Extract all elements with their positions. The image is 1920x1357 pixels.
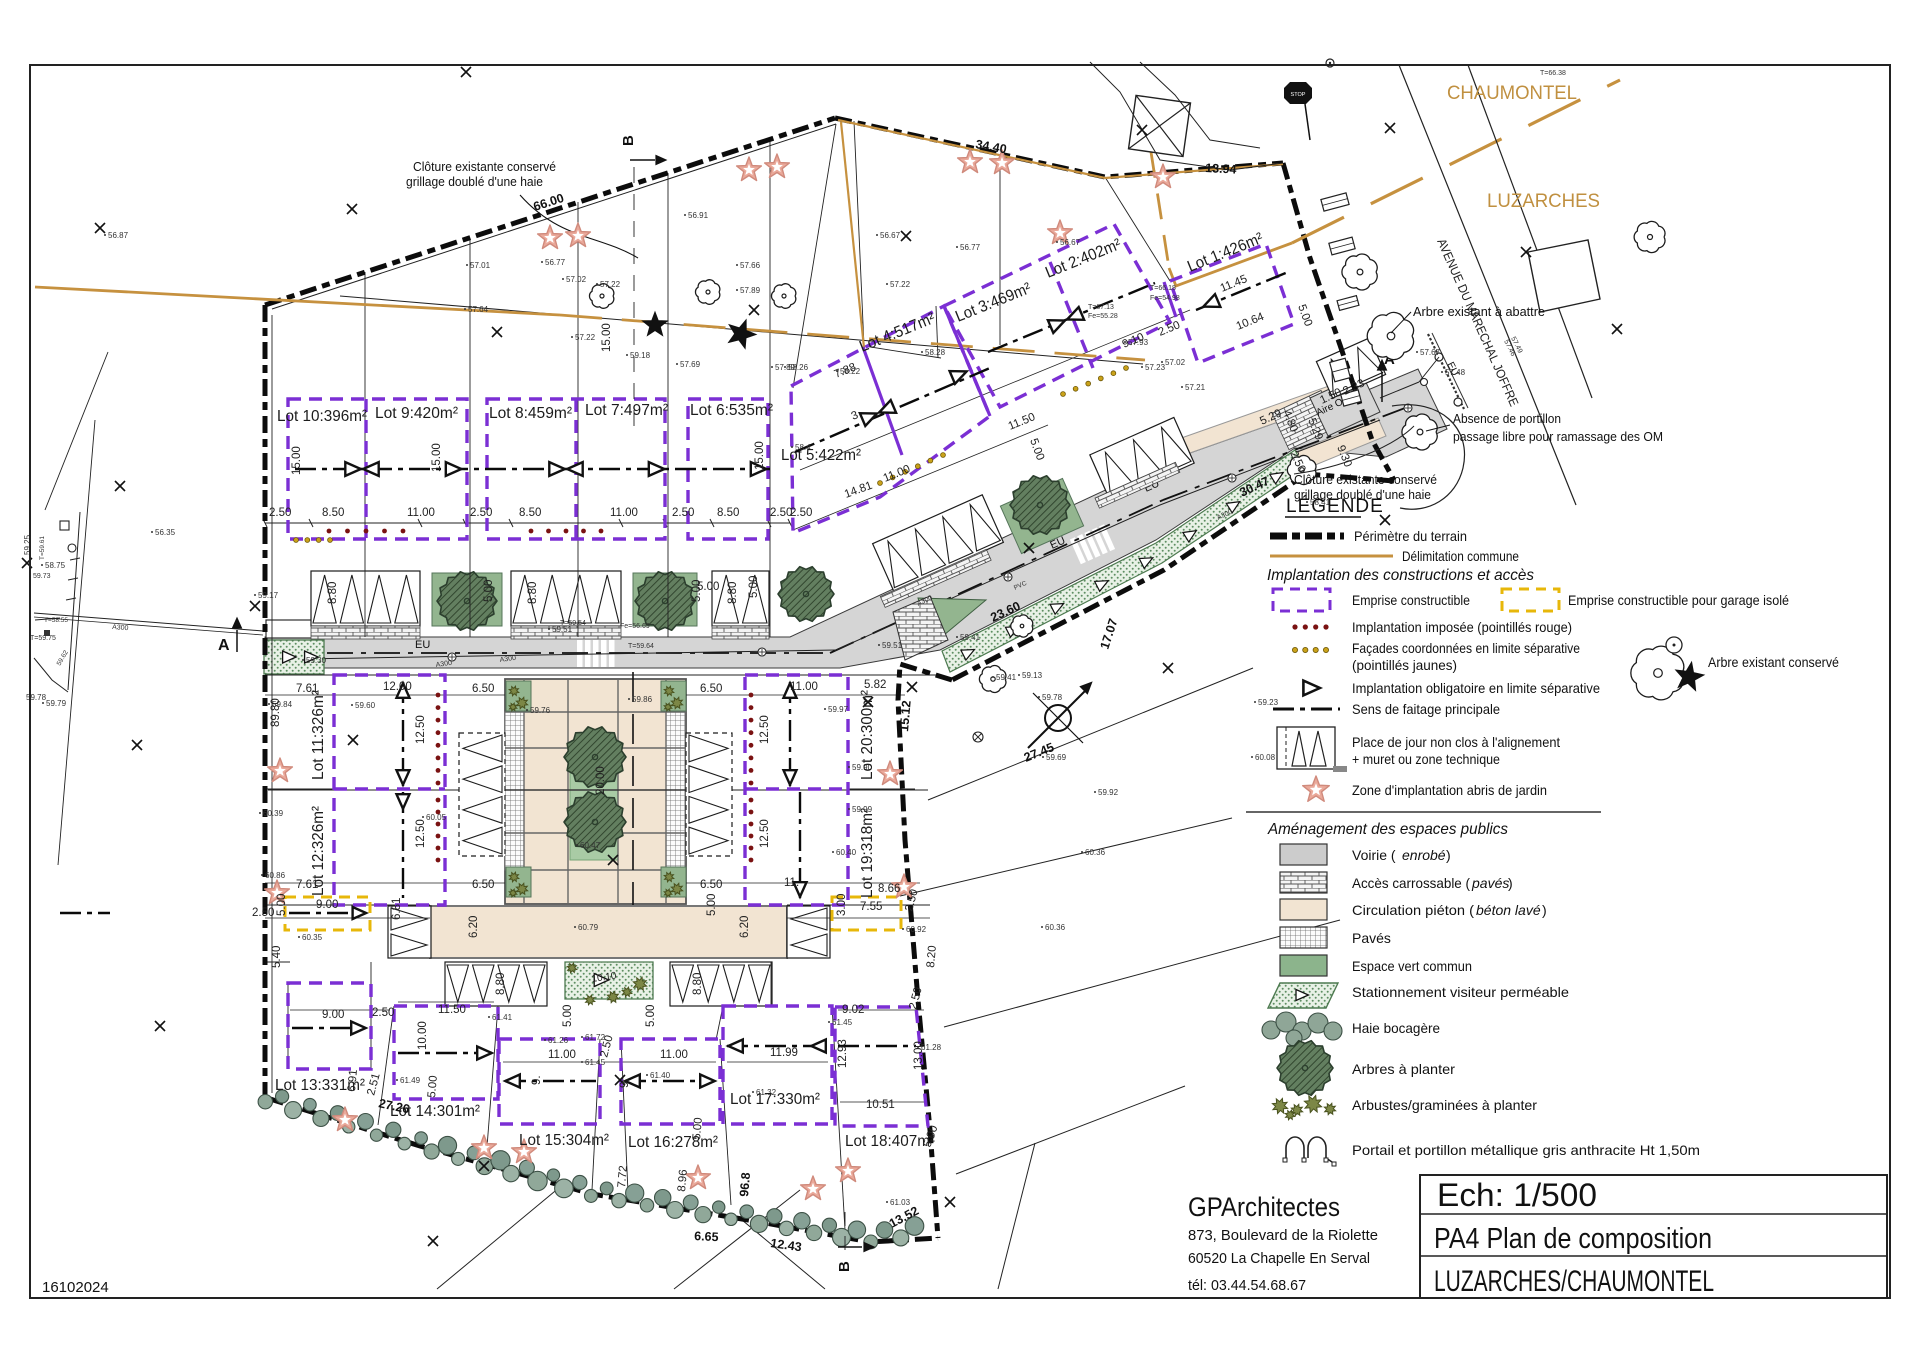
svg-text:60.79: 60.79 bbox=[578, 923, 599, 932]
svg-text:5.40: 5.40 bbox=[271, 946, 283, 968]
svg-text:5.00: 5.00 bbox=[426, 1075, 440, 1098]
svg-text:6.50: 6.50 bbox=[472, 683, 494, 695]
svg-text:59.86: 59.86 bbox=[632, 695, 653, 704]
svg-text:56.35: 56.35 bbox=[155, 528, 176, 537]
svg-text:61.49: 61.49 bbox=[400, 1076, 421, 1085]
svg-text:T=67.13: T=67.13 bbox=[1088, 304, 1114, 311]
svg-text:5.00: 5.00 bbox=[691, 1117, 705, 1140]
svg-text:Sens de faitage principale: Sens de faitage principale bbox=[1352, 701, 1500, 717]
svg-text:12.50: 12.50 bbox=[759, 715, 771, 744]
svg-text:Fe=56.69: Fe=56.69 bbox=[620, 623, 650, 630]
svg-text:59.73: 59.73 bbox=[33, 573, 51, 580]
svg-text:EU: EU bbox=[415, 639, 430, 651]
svg-text:5.00: 5.00 bbox=[562, 1005, 574, 1027]
svg-text:Place de jour non clos à l'ali: Place de jour non clos à l'alignement bbox=[1352, 734, 1560, 750]
svg-text:11.00: 11.00 bbox=[610, 507, 638, 519]
svg-text:Façades coordonnées en limite: Façades coordonnées en limite séparative bbox=[1352, 640, 1580, 656]
svg-text:57.23: 57.23 bbox=[1145, 363, 1166, 372]
svg-text:T=66.18: T=66.18 bbox=[1150, 285, 1176, 292]
svg-text:56.87: 56.87 bbox=[108, 231, 129, 240]
svg-text:Ech: 1/500: Ech: 1/500 bbox=[1437, 1177, 1597, 1213]
svg-text:Accès carrossable (: Accès carrossable ( bbox=[1352, 875, 1470, 891]
svg-text:60.86: 60.86 bbox=[265, 871, 286, 880]
svg-text:5.00: 5.00 bbox=[706, 894, 718, 916]
svg-text:8.50: 8.50 bbox=[519, 507, 541, 519]
svg-text:57.22: 57.22 bbox=[600, 280, 621, 289]
svg-text:Arbre existant à abattre: Arbre existant à abattre bbox=[1413, 304, 1545, 319]
svg-text:Lot 11:326m²: Lot 11:326m² bbox=[310, 689, 327, 780]
svg-text:89.80: 89.80 bbox=[270, 698, 282, 727]
svg-text:Arbustes/graminées à planter: Arbustes/graminées à planter bbox=[1352, 1097, 1537, 1113]
svg-text:15.00: 15.00 bbox=[431, 443, 443, 472]
svg-text:LUZARCHES: LUZARCHES bbox=[1487, 191, 1600, 212]
svg-text:CHAUMONTEL: CHAUMONTEL bbox=[1447, 83, 1577, 104]
svg-text:Lot 5:422m²: Lot 5:422m² bbox=[781, 447, 862, 464]
svg-text:2.50: 2.50 bbox=[269, 507, 291, 519]
svg-text:3.00: 3.00 bbox=[836, 894, 848, 916]
svg-text:béton lavé: béton lavé bbox=[1476, 902, 1541, 918]
svg-text:60.08: 60.08 bbox=[1255, 753, 1276, 762]
svg-text:57.67: 57.67 bbox=[1420, 348, 1441, 357]
svg-text:57.01: 57.01 bbox=[470, 261, 491, 270]
svg-text:8.66: 8.66 bbox=[878, 883, 900, 895]
svg-text:Lot 15:304m²: Lot 15:304m² bbox=[519, 1132, 610, 1149]
svg-text:Lot 7:497m²: Lot 7:497m² bbox=[585, 402, 669, 419]
svg-text:57.02: 57.02 bbox=[566, 275, 587, 284]
svg-text:57.64: 57.64 bbox=[468, 305, 489, 314]
svg-text:(pointillés jaunes): (pointillés jaunes) bbox=[1352, 657, 1457, 673]
svg-text:12.00: 12.00 bbox=[383, 681, 412, 693]
svg-text:57.66: 57.66 bbox=[740, 261, 761, 270]
svg-text:11.99: 11.99 bbox=[770, 1047, 798, 1059]
svg-text:7.61: 7.61 bbox=[296, 879, 318, 891]
svg-text:11.00: 11.00 bbox=[660, 1049, 688, 1061]
svg-text:6.65: 6.65 bbox=[694, 1229, 719, 1244]
svg-text:57.02: 57.02 bbox=[1165, 358, 1186, 367]
svg-text:Délimitation commune: Délimitation commune bbox=[1402, 548, 1519, 564]
svg-text:59.23: 59.23 bbox=[1258, 698, 1279, 707]
svg-text:60.39: 60.39 bbox=[263, 809, 284, 818]
svg-text:12.93: 12.93 bbox=[837, 1039, 849, 1068]
svg-text:10.00: 10.00 bbox=[417, 1021, 429, 1050]
svg-text:59.41: 59.41 bbox=[996, 673, 1017, 682]
svg-text:Clôture existante conservé: Clôture existante conservé bbox=[413, 159, 556, 174]
svg-text:Espace vert commun: Espace vert commun bbox=[1352, 958, 1472, 974]
svg-text:11.00: 11.00 bbox=[790, 681, 818, 693]
svg-text:Circulation piéton (: Circulation piéton ( bbox=[1352, 902, 1474, 918]
svg-text:58.28: 58.28 bbox=[925, 348, 946, 357]
svg-text:grillage doublé d'une haie: grillage doublé d'une haie bbox=[406, 174, 543, 189]
svg-text:+ muret ou zone technique: + muret ou zone technique bbox=[1352, 751, 1500, 767]
svg-text:A300: A300 bbox=[112, 624, 129, 632]
svg-text:8.80: 8.80 bbox=[692, 973, 704, 995]
svg-text:6.50: 6.50 bbox=[472, 879, 494, 891]
svg-text:2.50: 2.50 bbox=[790, 507, 812, 519]
svg-text:8.50: 8.50 bbox=[717, 507, 739, 519]
svg-text:56.77: 56.77 bbox=[545, 258, 566, 267]
svg-text:LUZARCHES/CHAUMONTEL: LUZARCHES/CHAUMONTEL bbox=[1434, 1265, 1714, 1298]
svg-text:8.20: 8.20 bbox=[925, 945, 939, 968]
svg-text:Lot 10:396m²: Lot 10:396m² bbox=[277, 408, 368, 425]
svg-text:5.82: 5.82 bbox=[864, 679, 886, 691]
svg-text:11.00: 11.00 bbox=[407, 507, 435, 519]
svg-text:5.00: 5.00 bbox=[748, 576, 760, 598]
svg-text:6.91: 6.91 bbox=[346, 1069, 360, 1092]
svg-text:57.48: 57.48 bbox=[1445, 368, 1466, 377]
svg-text:8.50: 8.50 bbox=[322, 507, 344, 519]
svg-text:13.94: 13.94 bbox=[1205, 161, 1237, 177]
svg-text:59.79: 59.79 bbox=[46, 699, 67, 708]
svg-text:6.50: 6.50 bbox=[700, 683, 722, 695]
svg-text:Absence de portillon: Absence de portillon bbox=[1453, 411, 1561, 426]
svg-text:Lot 8:459m²: Lot 8:459m² bbox=[489, 405, 573, 422]
svg-text:9.: 9. bbox=[619, 1078, 631, 1088]
svg-text:pavés: pavés bbox=[1471, 875, 1509, 891]
svg-text:tél: 03.44.54.68.67: tél: 03.44.54.68.67 bbox=[1188, 1277, 1306, 1294]
svg-text:57.22: 57.22 bbox=[575, 333, 596, 342]
svg-text:59.30: 59.30 bbox=[306, 656, 327, 665]
svg-text:PA4 Plan de composition: PA4 Plan de composition bbox=[1434, 1223, 1712, 1255]
svg-text:5.00: 5.00 bbox=[276, 894, 288, 916]
svg-text:5.00: 5.00 bbox=[483, 580, 495, 602]
svg-text:16102024: 16102024 bbox=[42, 1279, 109, 1296]
svg-text:Implantation obligatoire en li: Implantation obligatoire en limite sépar… bbox=[1352, 680, 1600, 696]
svg-text:GPArchitectes: GPArchitectes bbox=[1188, 1192, 1340, 1222]
svg-text:57.21: 57.21 bbox=[1185, 383, 1206, 392]
svg-text:): ) bbox=[1508, 875, 1513, 891]
svg-text:6.20: 6.20 bbox=[468, 916, 480, 938]
svg-text:Emprise constructible: Emprise constructible bbox=[1352, 592, 1470, 608]
svg-text:A: A bbox=[218, 637, 230, 654]
svg-text:59.97: 59.97 bbox=[828, 705, 849, 714]
svg-text:873, Boulevard de la Riolette: 873, Boulevard de la Riolette bbox=[1188, 1227, 1378, 1244]
svg-text:6.50: 6.50 bbox=[700, 879, 722, 891]
svg-text:2.50: 2.50 bbox=[252, 907, 274, 919]
svg-text:61.45: 61.45 bbox=[832, 1018, 853, 1027]
svg-text:Pavés: Pavés bbox=[1352, 930, 1391, 946]
svg-text:6.20: 6.20 bbox=[739, 916, 751, 938]
svg-text:10.51: 10.51 bbox=[866, 1099, 895, 1111]
svg-text:6.81: 6.81 bbox=[391, 898, 403, 920]
svg-text:60.36: 60.36 bbox=[1085, 848, 1106, 857]
svg-text:59.92: 59.92 bbox=[1098, 788, 1119, 797]
svg-text:59.60: 59.60 bbox=[355, 701, 376, 710]
svg-text:15.00: 15.00 bbox=[601, 323, 613, 352]
svg-text:60.92: 60.92 bbox=[906, 925, 927, 934]
svg-text:B: B bbox=[836, 1261, 853, 1272]
svg-text:Clôture existante conservé: Clôture existante conservé bbox=[1294, 472, 1437, 487]
svg-text:Emprise constructible pour gar: Emprise constructible pour garage isolé bbox=[1568, 592, 1789, 608]
svg-text:enrobé: enrobé bbox=[1402, 847, 1446, 863]
svg-text:Arbre existant conservé: Arbre existant conservé bbox=[1708, 654, 1839, 670]
svg-text:12.50: 12.50 bbox=[415, 819, 427, 848]
svg-text:Fe=55.28: Fe=55.28 bbox=[1088, 313, 1118, 320]
svg-text:15.12: 15.12 bbox=[897, 700, 914, 732]
svg-text:2.50: 2.50 bbox=[470, 507, 492, 519]
svg-text:57.69: 57.69 bbox=[680, 360, 701, 369]
svg-text:12.50: 12.50 bbox=[759, 819, 771, 848]
svg-text:): ) bbox=[1542, 902, 1547, 918]
svg-text:T=59.54: T=59.54 bbox=[560, 620, 586, 627]
svg-text:): ) bbox=[1446, 847, 1451, 863]
svg-text:B: B bbox=[620, 135, 637, 146]
svg-text:T=59.61: T=59.61 bbox=[39, 536, 46, 560]
svg-text:5.00: 5.00 bbox=[697, 581, 719, 593]
svg-text:T=59.75: T=59.75 bbox=[30, 635, 56, 642]
svg-text:12.50: 12.50 bbox=[415, 715, 427, 744]
svg-text:61.45: 61.45 bbox=[585, 1058, 606, 1067]
svg-text:60520 La Chapelle En Serval: 60520 La Chapelle En Serval bbox=[1188, 1250, 1370, 1267]
svg-text:8.80: 8.80 bbox=[327, 582, 339, 604]
svg-text:Aménagement des espaces public: Aménagement des espaces publics bbox=[1267, 821, 1508, 838]
svg-text:9.02: 9.02 bbox=[842, 1004, 864, 1016]
svg-text:T=66.38: T=66.38 bbox=[1540, 70, 1566, 77]
svg-text:15.00: 15.00 bbox=[754, 441, 766, 470]
svg-text:Lot 17:330m²: Lot 17:330m² bbox=[730, 1091, 821, 1108]
svg-text:20.00: 20.00 bbox=[595, 766, 607, 795]
svg-text:60.05: 60.05 bbox=[426, 813, 447, 822]
svg-text:Lot 19:318m²: Lot 19:318m² bbox=[859, 807, 876, 898]
svg-text:9.00: 9.00 bbox=[316, 899, 338, 911]
svg-text:8.96: 8.96 bbox=[676, 1169, 690, 1192]
svg-text:61.41: 61.41 bbox=[492, 1013, 513, 1022]
svg-text:Lot 6:535m²: Lot 6:535m² bbox=[690, 402, 774, 419]
svg-text:Lot 16:278m²: Lot 16:278m² bbox=[628, 1134, 719, 1151]
svg-text:59.76: 59.76 bbox=[530, 706, 551, 715]
svg-text:60.35: 60.35 bbox=[302, 933, 323, 942]
svg-text:60.36: 60.36 bbox=[1045, 923, 1066, 932]
svg-text:11.00: 11.00 bbox=[548, 1049, 576, 1061]
svg-text:Arbres à planter: Arbres à planter bbox=[1352, 1061, 1455, 1077]
svg-text:58.75: 58.75 bbox=[45, 561, 66, 570]
svg-text:61.40: 61.40 bbox=[650, 1071, 671, 1080]
svg-text:Zone d'implantation abris de j: Zone d'implantation abris de jardin bbox=[1352, 782, 1547, 798]
svg-text:Périmètre du terrain: Périmètre du terrain bbox=[1354, 528, 1467, 544]
svg-text:59.78: 59.78 bbox=[1042, 693, 1063, 702]
svg-text:57.89: 57.89 bbox=[740, 286, 761, 295]
svg-text:61.26: 61.26 bbox=[548, 1036, 569, 1045]
svg-text:8.80: 8.80 bbox=[727, 582, 739, 604]
svg-text:13.00: 13.00 bbox=[913, 1041, 925, 1070]
svg-text:Voirie (: Voirie ( bbox=[1352, 847, 1396, 863]
svg-text:58.26: 58.26 bbox=[788, 363, 809, 372]
svg-text:Portail et portillon métalliqu: Portail et portillon métallique gris ant… bbox=[1352, 1142, 1700, 1158]
svg-text:59.51: 59.51 bbox=[882, 641, 903, 650]
svg-text:7.55: 7.55 bbox=[860, 901, 882, 913]
svg-text:8.80: 8.80 bbox=[495, 973, 507, 995]
svg-text:Lot 9:420m²: Lot 9:420m² bbox=[375, 405, 459, 422]
svg-text:passage libre pour ramassage d: passage libre pour ramassage des OM bbox=[1453, 429, 1663, 444]
svg-text:59.41: 59.41 bbox=[960, 633, 981, 642]
svg-text:LÉGENDE: LÉGENDE bbox=[1286, 496, 1384, 517]
svg-text:60.47: 60.47 bbox=[580, 841, 601, 850]
svg-text:9.: 9. bbox=[531, 1075, 543, 1085]
svg-text:59.17: 59.17 bbox=[258, 591, 279, 600]
svg-text:15.00: 15.00 bbox=[291, 446, 303, 475]
svg-text:61.03: 61.03 bbox=[890, 1198, 911, 1207]
svg-text:2.50: 2.50 bbox=[372, 1007, 394, 1019]
svg-text:59.18: 59.18 bbox=[630, 351, 651, 360]
svg-text:STOP: STOP bbox=[1291, 92, 1306, 98]
svg-text:Lot 20:300m²: Lot 20:300m² bbox=[859, 689, 876, 780]
svg-text:7.61: 7.61 bbox=[296, 683, 318, 695]
svg-text:56.77: 56.77 bbox=[960, 243, 981, 252]
svg-text:56.67: 56.67 bbox=[880, 231, 901, 240]
svg-text:60.40: 60.40 bbox=[836, 848, 857, 857]
svg-text:8.80: 8.80 bbox=[527, 582, 539, 604]
svg-text:T=59.64: T=59.64 bbox=[628, 643, 654, 650]
svg-text:7.72: 7.72 bbox=[616, 1165, 630, 1188]
svg-text:2.50: 2.50 bbox=[672, 507, 694, 519]
svg-text:Stationnement visiteur perméab: Stationnement visiteur perméable bbox=[1352, 984, 1569, 1000]
svg-text:Haie bocagère: Haie bocagère bbox=[1352, 1020, 1440, 1036]
svg-text:5.00: 5.00 bbox=[645, 1005, 657, 1027]
svg-text:11.50: 11.50 bbox=[438, 1004, 466, 1016]
svg-text:56.91: 56.91 bbox=[688, 211, 709, 220]
svg-text:9.00: 9.00 bbox=[322, 1009, 344, 1021]
svg-text:Fe=54.98: Fe=54.98 bbox=[1150, 295, 1180, 302]
svg-text:56.67: 56.67 bbox=[1060, 238, 1081, 247]
svg-text:59.13: 59.13 bbox=[1022, 671, 1043, 680]
svg-text:11.: 11. bbox=[784, 877, 799, 889]
svg-text:57.22: 57.22 bbox=[890, 280, 911, 289]
svg-text:Implantation des constructions: Implantation des constructions et accès bbox=[1267, 567, 1534, 584]
svg-text:96.8: 96.8 bbox=[737, 1172, 753, 1198]
svg-text:Implantation imposée (pointill: Implantation imposée (pointillés rouge) bbox=[1352, 619, 1572, 635]
